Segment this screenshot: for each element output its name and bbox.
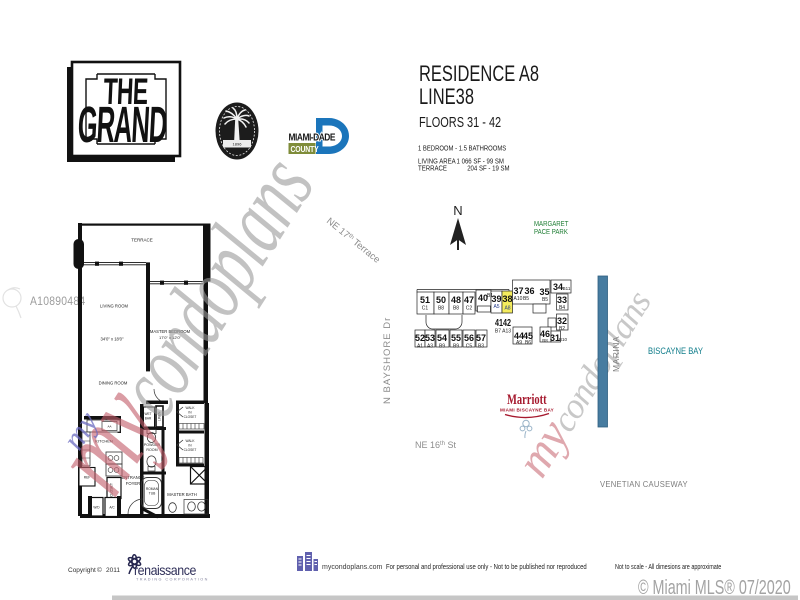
svg-text:C5: C5: [466, 344, 473, 350]
svg-text:TRADING CORPORATION: TRADING CORPORATION: [136, 578, 209, 582]
svg-text:B1: B1: [487, 293, 493, 299]
svg-text:©: ©: [97, 566, 102, 574]
svg-text:VENETIAN CAUSEWAY: VENETIAN CAUSEWAY: [600, 480, 688, 489]
svg-text:A3: A3: [427, 344, 433, 350]
svg-text:C2: C2: [466, 306, 473, 312]
svg-text:51: 51: [420, 295, 430, 305]
svg-text:A9: A9: [516, 340, 522, 346]
svg-text:36: 36: [524, 286, 534, 296]
svg-text:TUB: TUB: [149, 492, 156, 496]
svg-text:A8: A8: [504, 306, 510, 312]
svg-text:TERRACE: TERRACE: [131, 238, 153, 243]
svg-text:34: 34: [553, 282, 563, 292]
svg-text:For personal and professional: For personal and professional use only -…: [386, 564, 587, 572]
svg-text:48: 48: [451, 295, 461, 305]
svg-text:FLOORS 31 - 42: FLOORS 31 - 42: [419, 113, 501, 130]
svg-text:B6: B6: [525, 340, 531, 346]
svg-text:COUNTY: COUNTY: [291, 144, 320, 154]
svg-text:C1: C1: [422, 306, 429, 312]
svg-text:B8: B8: [453, 306, 459, 312]
svg-text:B5: B5: [523, 296, 529, 302]
svg-text:50: 50: [436, 295, 446, 305]
svg-text:B3: B3: [478, 344, 484, 350]
svg-text:53: 53: [425, 333, 435, 343]
svg-text:B5: B5: [542, 297, 548, 303]
svg-text:B7 A13: B7 A13: [495, 329, 511, 335]
svg-text:WALK: WALK: [186, 439, 196, 443]
svg-text:RESIDENCE A8: RESIDENCE A8: [419, 62, 539, 87]
svg-text:Marriott: Marriott: [507, 390, 547, 407]
svg-text:56: 56: [464, 333, 474, 343]
svg-text:renaissance: renaissance: [134, 563, 196, 579]
svg-text:B10: B10: [559, 337, 568, 342]
svg-text:A5: A5: [493, 304, 499, 310]
svg-text:4142: 4142: [495, 318, 511, 329]
svg-text:B2: B2: [559, 326, 565, 332]
svg-text:N: N: [453, 203, 462, 218]
svg-text:B8: B8: [542, 338, 548, 343]
svg-text:33: 33: [557, 295, 567, 305]
svg-text:37: 37: [513, 286, 523, 296]
svg-text:CLOSET: CLOSET: [184, 448, 197, 452]
svg-text:© Miami MLS® 07/2020: © Miami MLS® 07/2020: [638, 575, 791, 598]
svg-text:2011: 2011: [106, 567, 120, 574]
svg-text:32: 32: [557, 316, 567, 326]
svg-text:A10: A10: [514, 296, 523, 302]
svg-text:NE 17th Terrace: NE 17th Terrace: [324, 216, 382, 266]
svg-text:LIVING ROOM: LIVING ROOM: [100, 304, 128, 309]
svg-text:B9: B9: [453, 344, 459, 350]
svg-text:PACE PARK: PACE PARK: [534, 228, 568, 236]
svg-text:54: 54: [437, 333, 447, 343]
svg-text:TERRACE204 SF - 19 SM: TERRACE204 SF - 19 SM: [418, 165, 510, 173]
svg-text:35: 35: [539, 287, 549, 297]
svg-text:1 BEDROOM - 1.5 BATHROOMS: 1 BEDROOM - 1.5 BATHROOMS: [418, 145, 507, 153]
svg-text:1896: 1896: [233, 142, 243, 147]
svg-text:MARINA: MARINA: [611, 336, 621, 372]
svg-text:B4: B4: [559, 305, 565, 311]
svg-text:mycondoplans: mycondoplans: [26, 127, 338, 513]
svg-text:A1: A1: [417, 344, 423, 350]
svg-text:A/C: A/C: [109, 506, 115, 510]
svg-text:N BAYSHORE Dr: N BAYSHORE Dr: [382, 317, 393, 404]
svg-text:MARGARET: MARGARET: [534, 220, 569, 228]
svg-text:IN: IN: [188, 444, 192, 448]
svg-text:GRAND: GRAND: [76, 95, 168, 153]
svg-text:W/D: W/D: [93, 506, 100, 510]
svg-text:B8: B8: [438, 306, 444, 312]
svg-text:B11: B11: [563, 286, 571, 291]
svg-text:55: 55: [451, 333, 461, 343]
svg-text:MASTER BATH: MASTER BATH: [167, 492, 196, 497]
svg-text:Copyright: Copyright: [68, 567, 96, 574]
svg-text:57: 57: [476, 333, 486, 343]
svg-text:47: 47: [464, 295, 474, 305]
svg-text:B9: B9: [439, 344, 445, 350]
svg-text:mycondoplans: mycondoplans: [506, 279, 661, 486]
svg-text:Not to scale - All dimesions a: Not to scale - All dimesions are approxi…: [615, 563, 722, 571]
svg-text:NE 16th St: NE 16th St: [415, 440, 457, 450]
svg-text:MIAMI-DADE: MIAMI-DADE: [289, 132, 336, 144]
svg-text:A10890484: A10890484: [30, 296, 85, 309]
svg-text:38: 38: [502, 294, 512, 304]
svg-text:mycondoplans.com: mycondoplans.com: [322, 564, 382, 571]
svg-text:LINE38: LINE38: [419, 85, 474, 110]
svg-text:BISCAYNE BAY: BISCAYNE BAY: [648, 345, 703, 356]
svg-text:52: 52: [415, 333, 425, 343]
svg-text:MIAMI BISCAYNE BAY: MIAMI BISCAYNE BAY: [500, 408, 554, 413]
